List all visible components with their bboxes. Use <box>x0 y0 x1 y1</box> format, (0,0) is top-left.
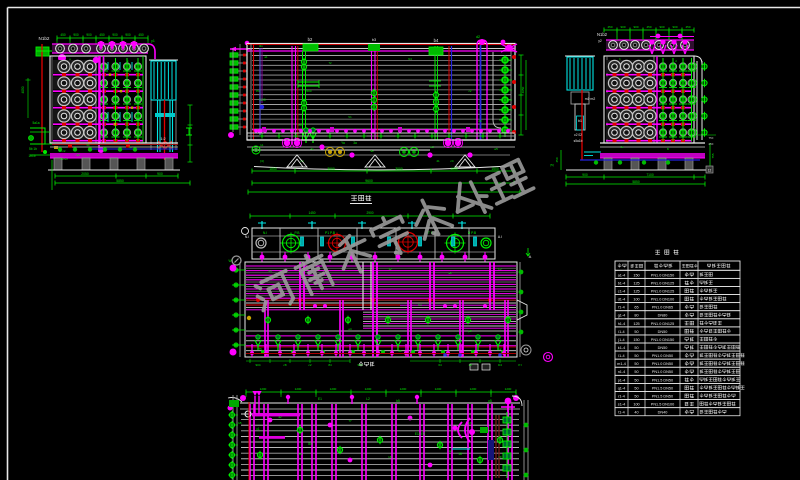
svg-text:100: 100 <box>633 298 639 302</box>
svg-text:P.I: P.I <box>518 363 521 367</box>
svg-text:j1-4: j1-4 <box>617 338 624 342</box>
svg-text:3000: 3000 <box>395 167 403 171</box>
svg-text:P1 P.B: P1 P.B <box>325 231 336 235</box>
svg-text:80: 80 <box>634 314 638 318</box>
svg-text:77: 77 <box>348 419 352 423</box>
svg-text:W: W <box>228 259 231 263</box>
svg-text:d2: d2 <box>476 35 480 39</box>
svg-text:N1: N1 <box>418 303 422 307</box>
svg-text:f1-4: f1-4 <box>618 306 625 310</box>
svg-text:r1-4: r1-4 <box>618 394 625 398</box>
svg-text:c3: c3 <box>409 417 412 421</box>
svg-text:y1: y1 <box>151 39 155 43</box>
svg-text:900: 900 <box>582 173 588 177</box>
svg-text:1:2: 1:2 <box>160 137 165 141</box>
svg-text:s5a1b: s5a1b <box>574 139 583 143</box>
svg-text:50: 50 <box>634 386 638 390</box>
svg-text:9b: 9b <box>370 149 374 153</box>
svg-text:D4: D4 <box>498 363 502 367</box>
svg-text:m4: m4 <box>298 452 302 456</box>
svg-text:50: 50 <box>634 346 638 350</box>
svg-text:50: 50 <box>634 362 638 366</box>
svg-text:DN80: DN80 <box>658 314 668 318</box>
svg-text:q1-4: q1-4 <box>618 386 626 390</box>
svg-text:1200: 1200 <box>505 387 512 391</box>
svg-text:900: 900 <box>112 33 118 37</box>
svg-text:c1-4: c1-4 <box>618 289 625 293</box>
svg-text:N P.B: N P.B <box>468 231 477 235</box>
svg-text:n1-4: n1-4 <box>618 370 626 374</box>
svg-text:N.I: N.I <box>263 231 267 235</box>
svg-text:y2: y2 <box>499 347 502 351</box>
svg-text:l1-4: l1-4 <box>618 354 624 358</box>
svg-text:d9: d9 <box>478 119 482 123</box>
svg-text:k1: k1 <box>261 143 264 147</box>
svg-text:V1: V1 <box>348 115 352 119</box>
svg-text:900: 900 <box>86 33 92 37</box>
svg-text:PN1.5 DN50: PN1.5 DN50 <box>652 394 673 398</box>
svg-text:N.I: N.I <box>245 235 249 239</box>
svg-text:c8: c8 <box>283 363 287 367</box>
svg-text:b6: b6 <box>468 421 472 425</box>
svg-text:PN1.0 DN50: PN1.0 DN50 <box>652 362 673 366</box>
svg-text:1850: 1850 <box>450 167 458 171</box>
svg-text:p8: p8 <box>468 329 472 333</box>
svg-text:i1-4: i1-4 <box>618 330 624 334</box>
svg-text:904: 904 <box>255 363 260 367</box>
svg-text:a9: a9 <box>448 271 452 275</box>
svg-text:F2: F2 <box>498 267 502 271</box>
svg-text:900: 900 <box>620 25 625 29</box>
svg-text:1500: 1500 <box>491 167 499 171</box>
svg-text:75±: 75± <box>709 136 714 140</box>
svg-text:b1-4: b1-4 <box>618 281 626 285</box>
svg-text:d1-4: d1-4 <box>618 298 626 302</box>
svg-text:[5]: [5] <box>550 163 554 167</box>
svg-text:1200: 1200 <box>435 387 442 391</box>
svg-text:s1-4: s1-4 <box>618 403 625 407</box>
svg-text:900: 900 <box>157 172 163 176</box>
svg-text:PN1.0 DN125: PN1.0 DN125 <box>651 281 674 285</box>
svg-text:w5: w5 <box>494 147 498 151</box>
svg-text:900: 900 <box>672 25 677 29</box>
svg-text:755: 755 <box>711 153 715 158</box>
svg-text:c4: c4 <box>450 159 454 163</box>
svg-text:E11 E3: E11 E3 <box>415 432 425 436</box>
svg-text:9600: 9600 <box>365 179 373 183</box>
svg-text:g1-4: g1-4 <box>618 314 626 318</box>
svg-text:L2: L2 <box>366 397 370 401</box>
svg-text:1200: 1200 <box>330 387 337 391</box>
svg-text:50: 50 <box>634 378 638 382</box>
svg-text:N1b2: N1b2 <box>597 32 608 37</box>
svg-text:V3: V3 <box>268 269 272 273</box>
svg-text:72: 72 <box>328 61 332 65</box>
svg-text:N1b2: N1b2 <box>39 36 50 41</box>
svg-text:2050: 2050 <box>81 172 89 176</box>
svg-text:k1-4: k1-4 <box>618 346 625 350</box>
svg-text:k5: k5 <box>238 421 242 425</box>
svg-text:18: 18 <box>458 452 462 456</box>
svg-text:b1: b1 <box>578 119 582 123</box>
svg-text:7100: 7100 <box>646 173 654 177</box>
svg-text:PN1.0 DN50: PN1.0 DN50 <box>652 354 673 358</box>
svg-text:15b1b: 15b1b <box>60 157 68 161</box>
svg-text:88: 88 <box>398 349 402 353</box>
svg-text:150: 150 <box>633 273 639 277</box>
svg-text:E1: E1 <box>318 397 322 401</box>
svg-text:m2: m2 <box>430 145 434 149</box>
svg-text:3000: 3000 <box>327 167 335 171</box>
svg-text:2900: 2900 <box>366 211 373 215</box>
svg-text:[4]: [4] <box>260 159 264 163</box>
svg-text:DN50: DN50 <box>658 346 668 350</box>
svg-text:125: 125 <box>633 322 639 326</box>
svg-text:18: 18 <box>468 363 472 367</box>
svg-text:450: 450 <box>685 25 690 29</box>
svg-text:6f: 6f <box>667 147 669 151</box>
svg-text:DN40: DN40 <box>658 411 668 415</box>
svg-text:25±: 25± <box>709 142 714 146</box>
svg-text:84: 84 <box>308 442 312 446</box>
svg-text:PN1.5 DN50: PN1.5 DN50 <box>652 378 673 382</box>
svg-text:150: 150 <box>633 338 639 342</box>
svg-text:4050: 4050 <box>21 86 25 93</box>
svg-text:t1-4: t1-4 <box>618 411 625 415</box>
svg-text:b2: b2 <box>308 37 313 42</box>
svg-text:65: 65 <box>634 306 638 310</box>
svg-text:1200: 1200 <box>470 387 477 391</box>
svg-text:d2: d2 <box>76 153 80 157</box>
svg-text:64: 64 <box>438 363 442 367</box>
svg-text:DN50: DN50 <box>658 330 668 334</box>
svg-text:v9: v9 <box>499 455 502 459</box>
svg-text:c1: c1 <box>256 427 260 431</box>
svg-text:m1-4: m1-4 <box>617 362 626 366</box>
svg-text:41: 41 <box>436 159 440 163</box>
svg-text:3a: 3a <box>353 141 357 145</box>
svg-text:1850: 1850 <box>269 167 277 171</box>
svg-text:5b c2: 5b c2 <box>59 149 66 153</box>
svg-text:e4: e4 <box>348 327 352 331</box>
svg-text:P1: P1 <box>256 89 260 93</box>
svg-text:c2: c2 <box>469 89 472 93</box>
svg-text:600: 600 <box>306 89 311 93</box>
svg-text:PN1.5 DN50: PN1.5 DN50 <box>652 386 673 390</box>
svg-text:5b 1b: 5b 1b <box>29 147 37 151</box>
svg-text:50: 50 <box>634 330 638 334</box>
svg-text:450: 450 <box>555 157 559 162</box>
svg-text:450: 450 <box>646 25 651 29</box>
svg-text:c2: c2 <box>308 363 312 367</box>
svg-text:5850: 5850 <box>632 180 640 184</box>
svg-text:50: 50 <box>634 354 638 358</box>
svg-text:PN1.0 DN125: PN1.0 DN125 <box>651 322 674 326</box>
svg-text:100: 100 <box>633 403 639 407</box>
svg-text:a2: a2 <box>278 415 282 419</box>
svg-text:40: 40 <box>634 411 638 415</box>
svg-text:PN1.0 DN50: PN1.0 DN50 <box>652 370 673 374</box>
svg-text:4050: 4050 <box>521 86 525 93</box>
svg-text:1200: 1200 <box>365 387 372 391</box>
svg-text:1200: 1200 <box>260 387 267 391</box>
svg-text:m1·m2: m1·m2 <box>585 97 596 101</box>
svg-text:b5: b5 <box>396 399 400 403</box>
svg-text:50: 50 <box>634 370 638 374</box>
svg-text:12: 12 <box>388 267 392 271</box>
svg-text:84: 84 <box>328 363 332 367</box>
svg-text:900: 900 <box>659 25 664 29</box>
svg-text:450: 450 <box>60 33 66 37</box>
svg-text:c2 02: c2 02 <box>574 133 582 137</box>
svg-text:a1: a1 <box>264 55 268 59</box>
svg-text:5a1a: 5a1a <box>32 121 39 125</box>
svg-text:12: 12 <box>708 169 712 173</box>
svg-text:50: 50 <box>634 394 638 398</box>
svg-text:a1-4: a1-4 <box>618 273 626 277</box>
svg-text:PN1.0 DN125: PN1.0 DN125 <box>651 289 674 293</box>
svg-text:PN1.0 DN65: PN1.0 DN65 <box>652 306 673 310</box>
svg-text:PN1.0 DN150: PN1.0 DN150 <box>651 338 674 342</box>
svg-text:b8: b8 <box>298 123 302 127</box>
svg-text:b3: b3 <box>372 38 376 42</box>
svg-text:450: 450 <box>99 33 105 37</box>
svg-text:PN1.5 DN100: PN1.5 DN100 <box>651 403 674 407</box>
svg-text:125: 125 <box>633 281 639 285</box>
svg-text:h1-4: h1-4 <box>618 322 626 326</box>
svg-text:1200: 1200 <box>295 387 302 391</box>
svg-text:1450: 1450 <box>308 211 315 215</box>
svg-text:PN1.0 DN150: PN1.0 DN150 <box>651 273 674 277</box>
svg-text:900: 900 <box>633 25 638 29</box>
svg-text:p1-4: p1-4 <box>618 378 626 382</box>
svg-text:b4: b4 <box>434 38 439 43</box>
svg-text:125: 125 <box>633 289 639 293</box>
svg-text:A.I: A.I <box>498 235 502 239</box>
svg-text:900: 900 <box>73 33 79 37</box>
svg-text:T5: T5 <box>258 347 262 351</box>
svg-text:Ya: Ya <box>341 141 345 145</box>
svg-text:+100: +100 <box>258 98 265 102</box>
svg-text:k8: k8 <box>389 455 392 459</box>
svg-text:450: 450 <box>138 33 144 37</box>
svg-text:900: 900 <box>125 33 131 37</box>
svg-text:12: 12 <box>448 449 452 453</box>
svg-text:PN1.0 DN100: PN1.0 DN100 <box>651 298 674 302</box>
svg-text:p5: p5 <box>488 399 492 403</box>
svg-text:5850: 5850 <box>116 179 124 183</box>
svg-text:N4: N4 <box>408 57 412 61</box>
svg-text:P.B: P.B <box>294 231 300 235</box>
svg-text:4a: 4a <box>310 147 314 151</box>
svg-text:y2: y2 <box>598 39 602 43</box>
svg-text:450: 450 <box>607 25 612 29</box>
svg-text:1200: 1200 <box>400 387 407 391</box>
